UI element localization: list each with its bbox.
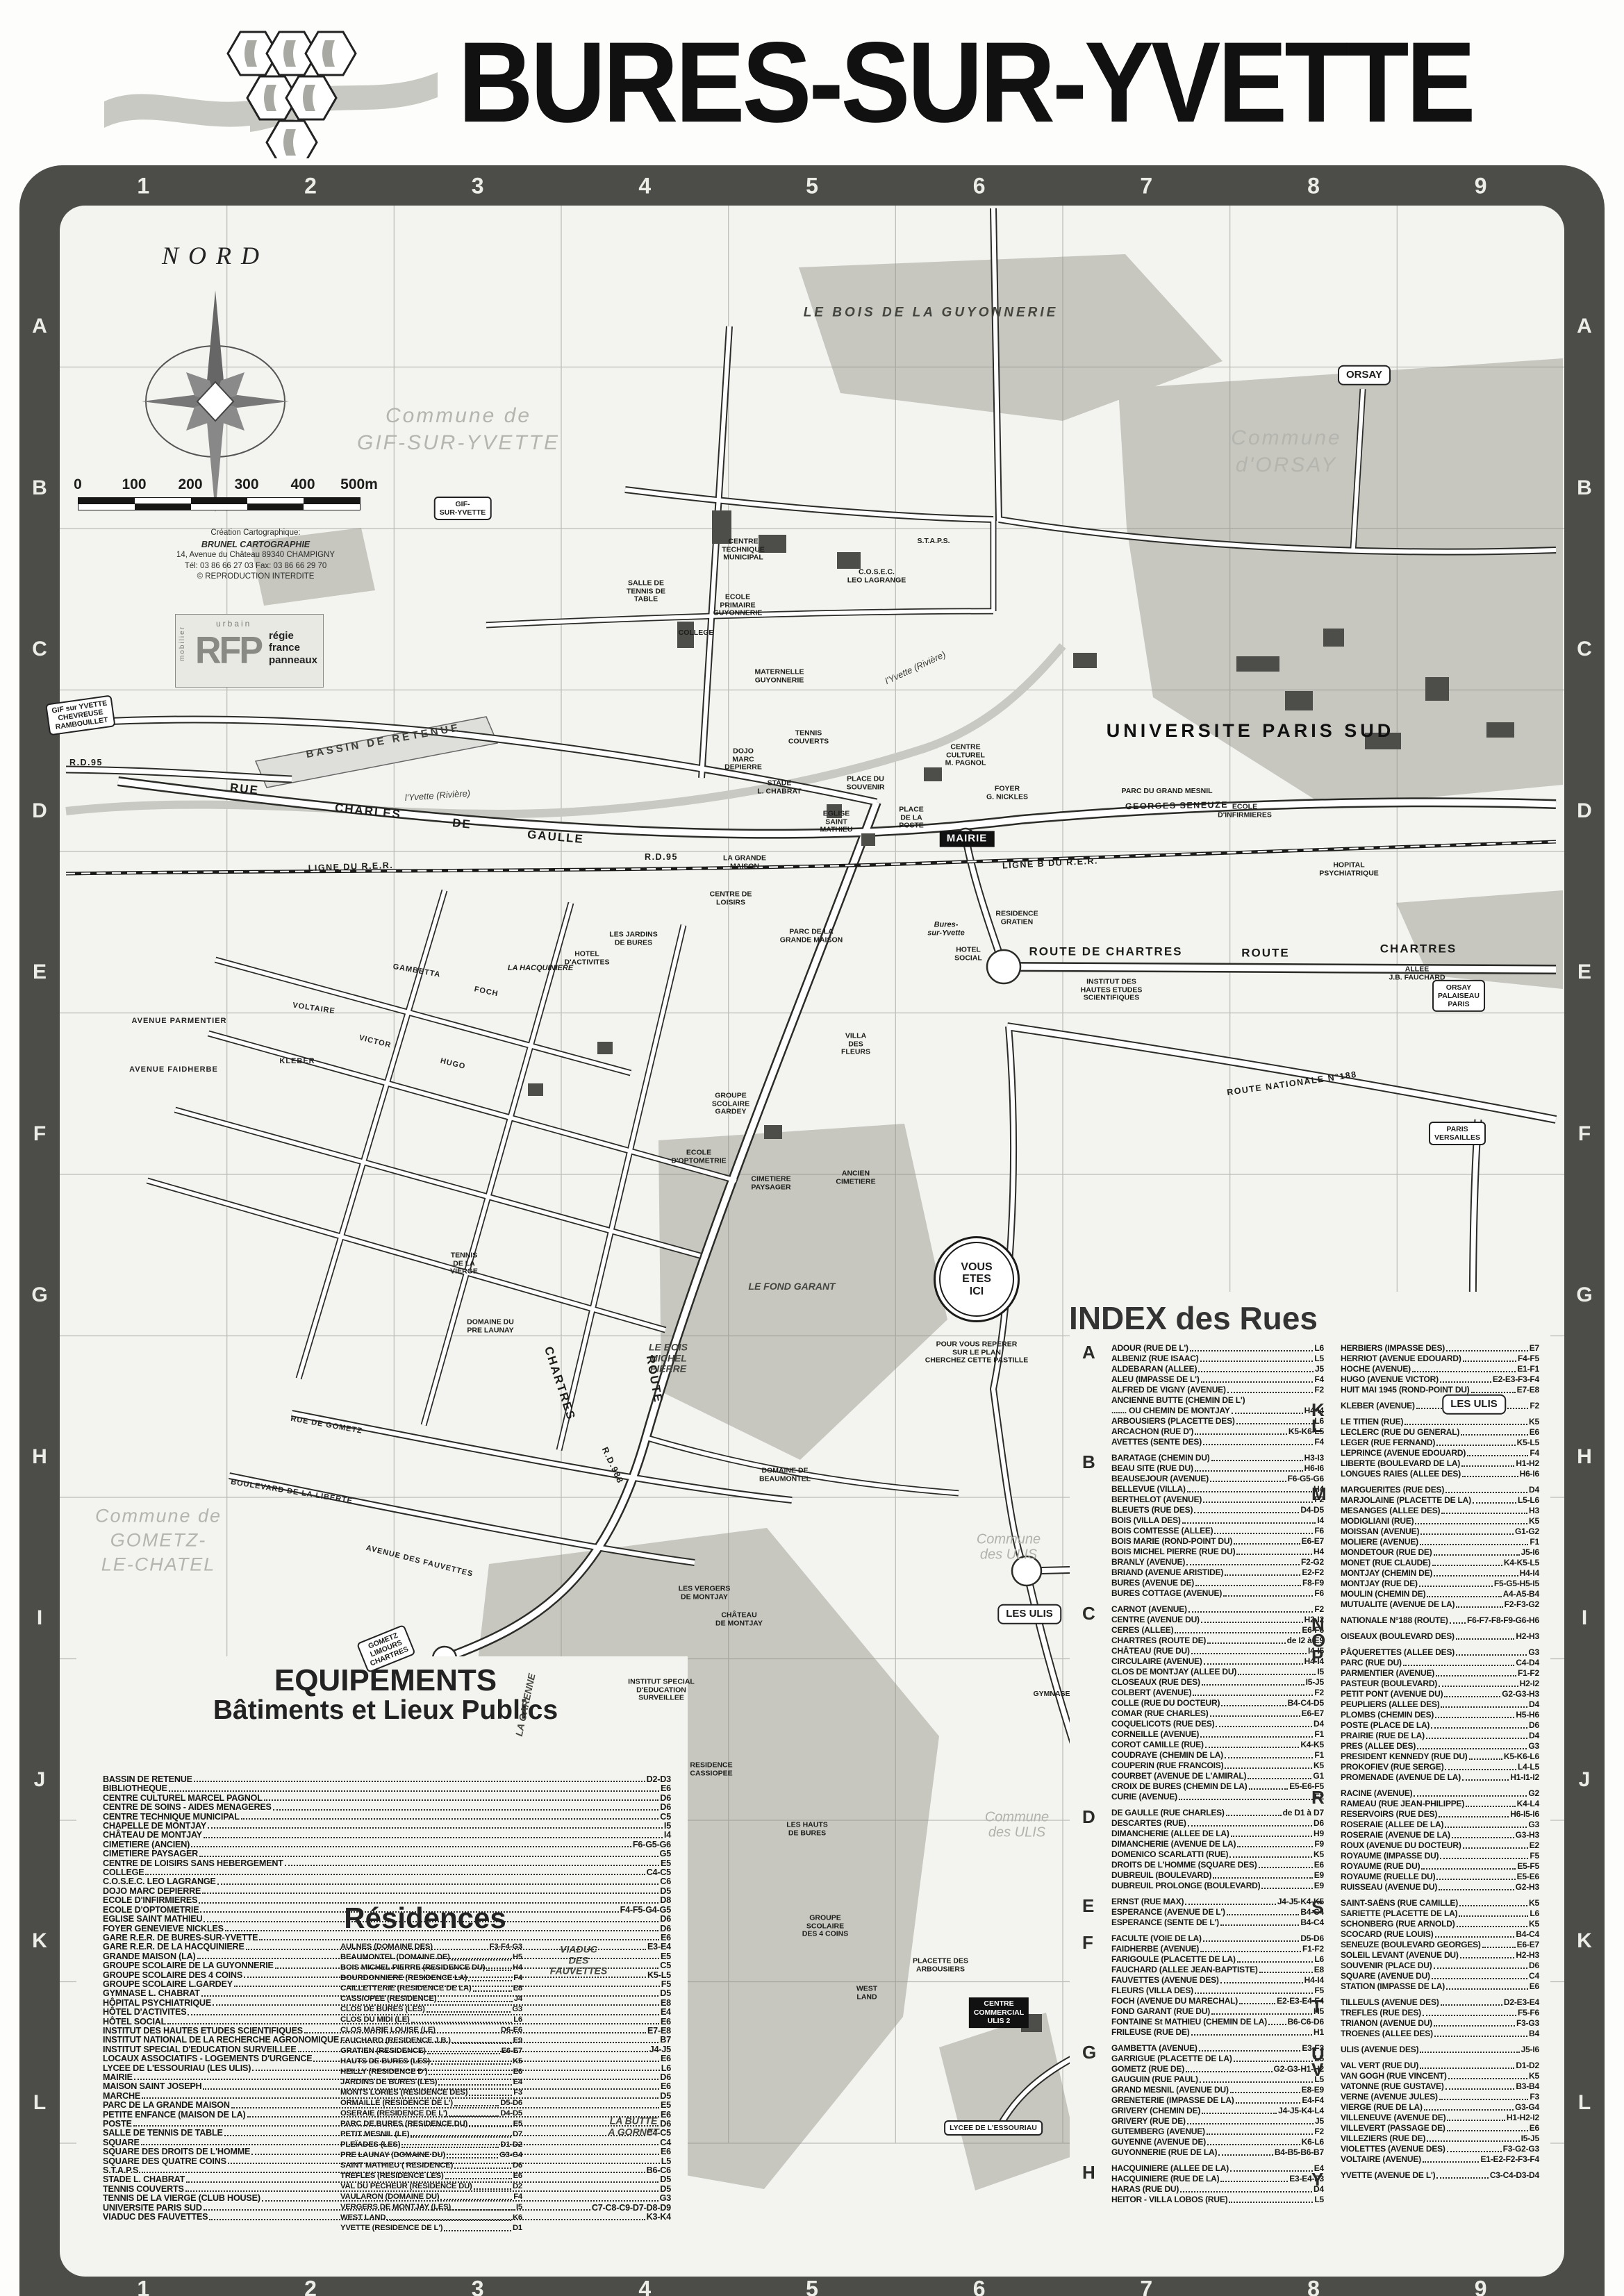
map-label: LES ULIS [997, 1604, 1061, 1624]
grid-row-label: K [1577, 1929, 1592, 1953]
list-entry: AVETTES (SENTE DES)F4 [1111, 1437, 1324, 1447]
grid-column-label: 7 [1140, 174, 1152, 199]
map-label: WEST LAND [856, 1985, 877, 2001]
list-entry: HERRIOT (AVENUE EDOUARD)F4-F5 [1341, 1354, 1539, 1364]
list-entry: GUYONNERIE (RUE DE LA)B4-B5-B6-B7 [1111, 2147, 1324, 2158]
map-label: RESIDENCE CASSIOPEE [690, 1761, 732, 1777]
list-entry: PARMENTIER (AVENUE)F1-F2 [1341, 1668, 1539, 1679]
list-entry: CURIE (AVENUE)F2 [1111, 1792, 1324, 1802]
map-label: GROUPE SCOLAIRE GARDEY [712, 1092, 749, 1117]
list-entry: HOCHE (AVENUE)E1-F1 [1341, 1364, 1539, 1374]
list-entry: ESPERANCE (AVENUE DE L')B4-C4 [1111, 1907, 1324, 1918]
list-entry: BEAUMONTEL (DOMAINE DE)H5 [340, 1952, 522, 1963]
list-entry: GRENETERIE (IMPASSE DE LA)E4-F4 [1111, 2095, 1324, 2106]
index-section-letter: A [1082, 1342, 1095, 1363]
grid-row-label: A [1577, 315, 1592, 338]
list-entry: HACQUINIERE (ALLEE DE LA)E4 [1111, 2163, 1324, 2174]
list-entry: PRAIRIE (RUE DE LA)D4 [1341, 1731, 1539, 1741]
list-entry: BIBLIOTHEQUEE6 [103, 1784, 671, 1793]
grid-column-label: 4 [638, 174, 651, 199]
list-entry: FOND GARANT (RUE DU)H5 [1111, 2006, 1324, 2017]
list-entry: VERGERS DE MONTJAY (LES)I5 [340, 2202, 522, 2213]
list-entry: GRAND MESNIL (AVENUE DU)E8-E9 [1111, 2085, 1324, 2095]
page-title: BURES-SUR-YVETTE [333, 0, 1598, 168]
scale-bar: 0100200300400500m [78, 476, 370, 513]
map-label: Commune des ULIS [985, 1810, 1049, 1841]
list-entry: BOIS (VILLA DES)I4 [1111, 1515, 1324, 1526]
grid-row-label: L [1578, 2091, 1591, 2115]
list-entry: COURBET (AVENUE DE L'AMIRAL)G1 [1111, 1771, 1324, 1781]
index-section: BBARATAGE (CHEMIN DU)H3-I3BEAU SITE (RUE… [1111, 1453, 1324, 1599]
map-label: ROUTE [1241, 946, 1290, 959]
index-section: YYVETTE (AVENUE DE L')C3-C4-D3-D4 [1341, 2170, 1539, 2181]
scale-segment [191, 498, 247, 504]
map-label: LES VERGERS DE MONTJAY [679, 1585, 731, 1601]
scale-segment [78, 498, 135, 504]
list-entry: BRIAND (AVENUE ARISTIDE)E2-F2 [1111, 1567, 1324, 1578]
index-section: PPÂQUERETTES (ALLEE DES)G3PARC (RUE DU)C… [1341, 1647, 1539, 1783]
list-entry: MARGUERITES (RUE DES)D4 [1341, 1485, 1539, 1495]
list-entry: FAUCHARD (RESIDENCE J.B.)E9 [340, 2036, 522, 2046]
list-entry: CIMETIERE (ANCIEN)F6-G5-G6 [103, 1840, 671, 1849]
list-entry: COUPERIN (RUE FRANCOIS)K5 [1111, 1761, 1324, 1771]
list-entry: CLOS MARIE LOUISE (LE)D6-E6 [340, 2025, 522, 2036]
map-label: LES ULIS [1442, 1395, 1506, 1415]
index-section-letter: E [1082, 1895, 1094, 1917]
list-entry: GARRIGUE (PLACETTE DE LA)L5 [1111, 2054, 1324, 2064]
list-entry: FACULTE (VOIE DE LA)D5-D6 [1111, 1933, 1324, 1944]
list-entry: HUGO (AVENUE VICTOR)E2-E3-F3-F4 [1341, 1374, 1539, 1385]
list-entry: SAINT-SAËNS (RUE CAMILLE)K5 [1341, 1898, 1539, 1908]
scale-tick-label: 500m [340, 476, 378, 493]
credits-line: BRUNEL CARTOGRAPHIE [151, 539, 360, 551]
scale-segment [247, 504, 304, 510]
list-entry: ULIS (AVENUE DES)J5-I6 [1341, 2045, 1539, 2055]
credits-line: 14, Avenue du Château 89340 CHAMPIGNY [151, 550, 360, 561]
list-entry: YVETTE (RESIDENCE DE L')D1 [340, 2223, 522, 2233]
list-entry: CAILLETTERIE (RESIDENCE DE LA)E8 [340, 1983, 522, 1994]
map-label: ECOLE PRIMAIRE GUYONNERIE [713, 594, 763, 618]
grid-column-label: 5 [806, 174, 818, 199]
map-label: PARC DE LA GRANDE MAISON [780, 928, 843, 944]
scale-segment [304, 498, 360, 504]
list-entry: ALEU (IMPASSE DE L')F4 [1111, 1374, 1324, 1385]
list-entry: VILLEVERT (PASSAGE DE)E6 [1341, 2123, 1539, 2133]
map-label: CENTRE COMMERCIAL ULIS 2 [969, 1997, 1029, 2028]
map-label: CHÂTEAU DE MONTJAY [715, 1611, 763, 1627]
grid-column-label: 6 [973, 2277, 986, 2296]
list-entry: LECLERC (RUE DU GENERAL)E6 [1341, 1427, 1539, 1438]
list-entry: FAUVETTES (AVENUE DES)H4-I4 [1111, 1975, 1324, 1986]
list-entry: CARNOT (AVENUE)F2 [1111, 1604, 1324, 1615]
list-entry: ROYAUME (RUE DU)E5-F5 [1341, 1861, 1539, 1872]
list-entry: MOLIERE (AVENUE)F1 [1341, 1537, 1539, 1547]
map-label: R.D.95 [645, 852, 678, 862]
map-label: CENTRE TECHNIQUE MUNICIPAL [722, 538, 765, 563]
list-entry: DROITS DE L'HOMME (SQUARE DES)E6 [1111, 1860, 1324, 1870]
grid-row-label: F [33, 1122, 46, 1146]
map-label: TENNIS COUVERTS [788, 729, 829, 745]
grid-row-label: L [33, 2091, 46, 2115]
list-entry: SQUARE (AVENUE DU)C4 [1341, 1971, 1539, 1981]
list-entry: FOCH (AVENUE DU MARECHAL)E2-E3-E4-F4 [1111, 1996, 1324, 2006]
grid-row-label: K [32, 1929, 47, 1953]
map-label: CHARTRES [1380, 942, 1457, 955]
map-label: GROUPE SCOLAIRE DES 4 COINS [802, 1915, 849, 1939]
list-entry: RAMEAU (RUE JEAN-PHILIPPE)K4-L4 [1341, 1799, 1539, 1809]
map-label: ANCIEN CIMETIERE [836, 1170, 875, 1186]
list-entry: CHÂTEAU (RUE DU)I4-I5 [1111, 1646, 1324, 1656]
header: BURES-SUR-YVETTE [0, 0, 1624, 165]
map-label: STADE L. CHABRAT [757, 779, 801, 795]
list-entry: PLEÏADES (LES)D1-D2 [340, 2140, 522, 2150]
list-entry: GUTEMBERG (AVENUE)F2 [1111, 2127, 1324, 2137]
index-section: HERBIERS (IMPASSE DES)E7HERRIOT (AVENUE … [1341, 1343, 1539, 1395]
list-entry: PRESIDENT KENNEDY (RUE DU)K5-K6-L6 [1341, 1752, 1539, 1762]
scale-segment [78, 504, 135, 510]
map-label: UNIVERSITE PARIS SUD [1107, 720, 1395, 741]
grid-column-label: 3 [472, 174, 484, 199]
list-entry: SCHONBERG (RUE ARNOLD)K5 [1341, 1919, 1539, 1929]
list-entry: FLEURS (VILLA DES)F5 [1111, 1986, 1324, 1996]
list-entry: LE TITIEN (RUE)K5 [1341, 1417, 1539, 1427]
list-entry: DESCARTES (RUE)D6 [1111, 1818, 1324, 1829]
map-label: TENNIS DE LA VIERGE [450, 1252, 478, 1276]
list-entry: CENTRE CULTUREL MARCEL PAGNOLD6 [103, 1794, 671, 1803]
list-entry: COLBERT (AVENUE)F2 [1111, 1688, 1324, 1698]
list-entry: BOIS COMTESSE (ALLEE)F6 [1111, 1526, 1324, 1536]
list-entry: BRANLY (AVENUE)F2-G2 [1111, 1557, 1324, 1567]
map-label: PLACE DU SOUVENIR [847, 775, 885, 791]
grid-column-label: 4 [638, 2277, 651, 2296]
list-entry: CLOS DE MONTJAY (ALLEE DU)I5 [1111, 1667, 1324, 1677]
index-section: AADOUR (RUE DE L')L6ALBENIZ (RUE ISAAC)L… [1111, 1343, 1324, 1447]
list-entry: BASSIN DE RETENUED2-D3 [103, 1775, 671, 1784]
list-entry: VAL DU PECHEUR (RESIDENCE DU)D2 [340, 2181, 522, 2192]
map-label: Commune des ULIS [977, 1532, 1041, 1563]
rfp-right-label: régie france panneaux [269, 630, 317, 666]
index-section-letter: F [1082, 1932, 1093, 1954]
map-label: SALLE DE TENNIS DE TABLE [627, 580, 665, 604]
grid-row-label: E [1577, 960, 1591, 984]
list-entry: ESPERANCE (SENTE DE L')B4-C4 [1111, 1918, 1324, 1928]
list-entry: CROIX DE BURES (CHEMIN DE LA)E5-E6-F5 [1111, 1781, 1324, 1792]
index-section: UULIS (AVENUE DES)J5-I6 [1341, 2045, 1539, 2055]
index-section: OOISEAUX (BOULEVARD DES)H2-H3 [1341, 1631, 1539, 1642]
list-entry: TRIANON (AVENUE DU)F3-G3 [1341, 2018, 1539, 2029]
list-entry: VAL VERT (RUE DU)D1-D2 [1341, 2061, 1539, 2071]
index-section: TTILLEULS (AVENUE DES)D2-E3-E4TREFLES (R… [1341, 1997, 1539, 2039]
list-entry: COUDRAYE (CHEMIN DE LA)F1 [1111, 1750, 1324, 1761]
map-label: FOYER G. NICKLES [986, 785, 1028, 801]
list-entry: PEUPLIERS (ALLEE DES)D4 [1341, 1699, 1539, 1710]
map-label: COLLEGE [679, 629, 714, 638]
list-entry: GRIVERY (CHEMIN DE)J4-J5-K4-L4 [1111, 2106, 1324, 2116]
index-section: NNATIONALE N°188 (ROUTE)F6-F7-F8-F9-G6-H… [1341, 1615, 1539, 1626]
list-entry: PARC DE BURES (RESIDENCE DU)E5 [340, 2119, 522, 2129]
list-entry: CENTRE DE LOISIRS SANS HEBERGEMENTE5 [103, 1859, 671, 1868]
index-section: RRACINE (AVENUE)G2RAMEAU (RUE JEAN-PHILI… [1341, 1788, 1539, 1892]
list-entry: VILLENEUVE (AVENUE DE)H1-H2-I2 [1341, 2113, 1539, 2123]
list-entry: COLLEGEC4-C5 [103, 1868, 671, 1877]
list-entry: DIMANCHERIE (AVENUE DE LA)F9 [1111, 1839, 1324, 1849]
list-entry: HAUTS DE BURES (LES)K5 [340, 2056, 522, 2067]
list-entry: ANCIENNE BUTTE (CHEMIN DE L') [1111, 1395, 1324, 1406]
list-entry: OISEAUX (BOULEVARD DES)H2-H3 [1341, 1631, 1539, 1642]
index-column-right: HERBIERS (IMPASSE DES)E7HERRIOT (AVENUE … [1341, 1343, 1539, 2186]
list-entry: CHARTRES (ROUTE DE)de I2 à E9 [1111, 1636, 1324, 1646]
list-entry: COROT CAMILLE (RUE)K4-K5 [1111, 1740, 1324, 1750]
map-label: LE FOND GARANT [748, 1281, 835, 1292]
map-label: MATERNELLE GUYONNERIE [755, 668, 804, 684]
grid-row-label: I [1582, 1606, 1587, 1630]
grid-row-label: H [32, 1445, 47, 1469]
grid-row-label: E [33, 960, 47, 984]
map-label: Commune de GOMETZ- LE-CHATEL [95, 1504, 222, 1577]
map-label: S.T.A.P.S. [917, 538, 950, 546]
grid-column-label: 7 [1140, 2277, 1152, 2296]
list-entry: NATIONALE N°188 (ROUTE)F6-F7-F8-F9-G6-H6 [1341, 1615, 1539, 1626]
list-entry: CENTRE DE SOINS - AIDES MENAGERESD6 [103, 1803, 671, 1812]
map-label: PLACE DE LA POSTE [899, 806, 924, 831]
list-entry: DUBREUIL PROLONGE (BOULEVARD)E9 [1111, 1881, 1324, 1891]
list-entry: MONTJAY (RUE DE)F5-G5-H5-I5 [1341, 1579, 1539, 1589]
list-entry: BOURDONNIERE (RESIDENCE LA)F4 [340, 1973, 522, 1983]
list-entry: ROUX (AVENUE DU DOCTEUR)E2 [1341, 1840, 1539, 1851]
list-entry: VIERGE (RUE DE LA)G3-G4 [1341, 2102, 1539, 2113]
list-entry: RESERVOIRS (RUE DES)H6-I5-I6 [1341, 1809, 1539, 1820]
list-entry: BURES COTTAGE (AVENUE)F6 [1111, 1588, 1324, 1599]
grid-row-label: G [31, 1283, 47, 1307]
map-label: PARC DU GRAND MESNIL [1121, 788, 1212, 796]
list-entry: AULNES (DOMAINE DES)F3-F4-G3 [340, 1942, 522, 1952]
grid-column-label: 1 [137, 174, 149, 199]
grid-column-label: 2 [304, 2277, 317, 2296]
index-section-letter: M [1311, 1483, 1327, 1505]
map-label: DE [451, 816, 472, 831]
grid-column-label: 2 [304, 174, 317, 199]
map-label: HOTEL SOCIAL [954, 946, 982, 962]
scale-tick-label: 300 [234, 476, 258, 493]
list-entry: FAUCHARD (ALLEE JEAN-BAPTISTE)E8 [1111, 1965, 1324, 1975]
grid-row-label: J [34, 1768, 46, 1792]
grid-column-label: 6 [973, 174, 986, 199]
list-entry: MARJOLAINE (PLACETTE DE LA)L5-L6 [1341, 1495, 1539, 1506]
list-entry: MUTUALITE (AVENUE DE LA)F2-F3-G2 [1341, 1599, 1539, 1610]
list-entry: VAN GOGH (RUE VINCENT)K5 [1341, 2071, 1539, 2081]
grid-row-label: H [1577, 1445, 1592, 1469]
grid-column-label: 9 [1475, 174, 1487, 199]
grid-column-label: 5 [806, 2277, 818, 2296]
index-section-letter: P [1311, 1646, 1323, 1667]
map-label: GIF- SUR-YVETTE [434, 497, 492, 520]
list-entry: VAULARON (DOMAINE DU)F4 [340, 2192, 522, 2202]
grid-column-label: 8 [1307, 174, 1320, 199]
list-entry: POSTE (PLACE DE LA)D6 [1341, 1720, 1539, 1731]
grid-column-label: 1 [137, 2277, 149, 2296]
list-entry: RACINE (AVENUE)G2 [1341, 1788, 1539, 1799]
list-entry: DUBREUIL (BOULEVARD)E9 [1111, 1870, 1324, 1881]
list-entry: KLEBER (AVENUE)F2 [1341, 1401, 1539, 1411]
list-entry: PARC (RUE DU)C4-D4 [1341, 1658, 1539, 1668]
list-entry: GUYENNE (AVENUE DE)K6-L6 [1111, 2137, 1324, 2147]
rfp-urbain-label: urbain [216, 619, 251, 629]
list-entry: SARIETTE (PLACETTE DE LA)L6 [1341, 1908, 1539, 1919]
list-entry: COMAR (RUE CHARLES)E6-E7 [1111, 1708, 1324, 1719]
list-entry: CLOS DU MIDI (LE)L6 [340, 2015, 522, 2025]
index-title: INDEX des Rues [1069, 1299, 1318, 1337]
list-entry: PASTEUR (BOULEVARD)H2-I2 [1341, 1679, 1539, 1689]
scale-tick-label: 0 [74, 476, 82, 493]
list-entry: BELLEVUE (VILLA)H4 [1111, 1484, 1324, 1495]
list-entry: VIOLETTES (AVENUE DES)F3-G2-G3 [1341, 2144, 1539, 2154]
grid-column-label: 8 [1307, 2277, 1320, 2296]
map-label: AVENUE FAIDHERBE [129, 1065, 218, 1074]
grid-column-label: 9 [1475, 2277, 1487, 2296]
list-entry: BLEUETS (RUE DES)D4-D5 [1111, 1505, 1324, 1515]
grid-row-label: F [1578, 1122, 1591, 1146]
list-entry: HEILLY (RESIDENCE D')E6 [340, 2067, 522, 2077]
list-entry: ARCACHON (RUE D')K5-K6-L5 [1111, 1426, 1324, 1437]
map-label: LA BUTTE A GORNET [608, 2115, 658, 2137]
list-entry: PETIT PONT (AVENUE DU)G2-G3-H3 [1341, 1689, 1539, 1699]
list-entry: GAMBETTA (AVENUE)E3-F3 [1111, 2043, 1324, 2054]
residences-list: AULNES (DOMAINE DES)F3-F4-G3BEAUMONTEL (… [340, 1942, 522, 2233]
list-entry: CORNEILLE (AVENUE)F1 [1111, 1729, 1324, 1740]
map-label: DOMAINE DU PRE LAUNAY [467, 1318, 514, 1334]
list-entry: ALBENIZ (RUE ISAAC)L5 [1111, 1354, 1324, 1364]
list-entry: ORMAILLE (RESIDENCE DE L')D5-D6 [340, 2098, 522, 2108]
list-entry: WEST LANDK6 [340, 2213, 522, 2223]
map-label: PLACETTE DES ARBOUSIERS [913, 1957, 968, 1973]
map-label: GYMNASE [1033, 1690, 1070, 1699]
list-entry: BOIS MICHEL PIERRE (RUE DU)H4 [1111, 1547, 1324, 1557]
list-entry: LONGUES RAIES (ALLEE DES)H6-I6 [1341, 1469, 1539, 1479]
list-entry: ALDEBARAN (ALLEE)J5 [1111, 1364, 1324, 1374]
list-entry: SAINT MATHIEU ( RESIDENCE)D6 [340, 2161, 522, 2171]
list-entry: CLOS DE BURES (LES)G3 [340, 2004, 522, 2015]
list-entry: MODIGLIANI (RUE)K5 [1341, 1516, 1539, 1526]
map-label: AVENUE PARMENTIER [132, 1017, 227, 1025]
map-label: RESIDENCE GRATIEN [995, 910, 1038, 926]
you-are-here-note: POUR VOUS REPERER SUR LE PLAN CHERCHEZ C… [925, 1341, 1029, 1365]
rfp-main-label: RFP [195, 629, 261, 673]
list-entry: BOIS MARIE (ROND-POINT DU)E6-E7 [1111, 1536, 1324, 1547]
grid-row-label: B [1577, 476, 1592, 500]
list-entry: HERBIERS (IMPASSE DES)E7 [1341, 1343, 1539, 1354]
index-section: CCARNOT (AVENUE)F2CENTRE (AVENUE DU)H2-I… [1111, 1604, 1324, 1802]
list-entry: SENEUZE (BOULEVARD GEORGES)E6-E7 [1341, 1940, 1539, 1950]
index-section: DDE GAULLE (RUE CHARLES)de D1 à D7DESCAR… [1111, 1808, 1324, 1891]
list-entry: BEAU SITE (RUE DU)H6-I6 [1111, 1463, 1324, 1474]
scale-segment [304, 504, 360, 510]
list-entry: ARBOUSIERS (PLACETTE DES)L6 [1111, 1416, 1324, 1426]
list-entry: CIRCULAIRE (AVENUE)H4-I4 [1111, 1656, 1324, 1667]
scale-tick-label: 100 [122, 476, 146, 493]
index-section-letter: H [1082, 2162, 1095, 2183]
you-are-here-badge: VOUS ETES ICI [934, 1236, 1020, 1322]
list-entry: SOLEIL LEVANT (AVENUE DU)H2-H3 [1341, 1950, 1539, 1961]
you-are-here-text: VOUS ETES ICI [939, 1242, 1014, 1317]
list-entry: YVETTE (AVENUE DE L')C3-C4-D3-D4 [1341, 2170, 1539, 2181]
list-entry: ROYAUME (IMPASSE DU)F5 [1341, 1851, 1539, 1861]
equipements-subtitle: Bâtiments et Lieux Publics [97, 1696, 674, 1726]
map-label: GEORGES SENEUZE [1125, 800, 1228, 812]
list-entry: HEITOR - VILLA LOBOS (RUE)L5 [1111, 2195, 1324, 2205]
index-section-letter: T [1311, 1996, 1323, 2018]
list-entry: ROYAUME (RUELLE DU)E5-E6 [1341, 1872, 1539, 1882]
credits-line: Tél: 03 86 66 27 03 Fax: 03 86 66 29 70 [151, 561, 360, 572]
list-entry: TILLEULS (AVENUE DES)D2-E3-E4 [1341, 1997, 1539, 2008]
rfp-mobilier-label: mobilier [179, 626, 186, 661]
list-entry: PRE LAUNAY (DOMAINE DU)G3-G4 [340, 2150, 522, 2161]
map-label: Commune d'ORSAY [1231, 424, 1341, 479]
list-entry: RUISSEAU (AVENUE DU)G2-H3 [1341, 1882, 1539, 1892]
map-page: BURES-SUR-YVETTE 112233445566778899AABBC… [0, 0, 1624, 2296]
list-entry: CERES (ALLEE)E6-F6 [1111, 1625, 1324, 1636]
index-section-letter: R [1311, 1787, 1325, 1808]
list-entry: GRATIEN (RESIDENCE)E6-E7 [340, 2046, 522, 2056]
index-section-letter: V [1311, 2059, 1323, 2081]
map-label: DOMAINE DE BEAUMONTEL [759, 1467, 811, 1483]
index-section: FFACULTE (VOIE DE LA)D5-D6FAIDHERBE (AVE… [1111, 1933, 1324, 2038]
map-label: PARIS VERSAILLES [1429, 1122, 1486, 1145]
index-column-left: AADOUR (RUE DE L')L6ALBENIZ (RUE ISAAC)L… [1111, 1343, 1324, 2211]
map-label: CENTRE DE LOISIRS [710, 890, 752, 906]
map-label: LE BOIS DE LA GUYONNERIE [804, 305, 1059, 319]
list-entry: CENTRE (AVENUE DU)H2-I2 [1111, 1615, 1324, 1625]
map-label: DOJO MARC DEPIERRE [724, 748, 762, 772]
map-label: MAIRIE [940, 831, 995, 847]
list-entry: GRIVERY (RUE DE)J5 [1111, 2116, 1324, 2127]
index-section: MMARGUERITES (RUE DES)D4MARJOLAINE (PLAC… [1341, 1485, 1539, 1610]
map-label: ECOLE D'INFIRMIERES [1218, 803, 1272, 819]
list-entry: SOUVENIR (PLACE DU)D6 [1341, 1961, 1539, 1971]
list-entry: ROSERAIE (AVENUE DE LA)G3-H3 [1341, 1830, 1539, 1840]
scale-tick-label: 400 [290, 476, 315, 493]
list-entry: COLLE (RUE DU DOCTEUR)B4-C4-D5 [1111, 1698, 1324, 1708]
list-entry: DOJO MARC DEPIERRED5 [103, 1887, 671, 1896]
list-entry: PLOMBS (CHEMIN DES)H5-H6 [1341, 1710, 1539, 1720]
map-label: LA GRANDE MAISON [723, 854, 766, 870]
list-entry: C.O.S.E.C. LEO LAGRANGEC6 [103, 1877, 671, 1886]
grid-row-label: J [1579, 1768, 1591, 1792]
list-entry: GOMETZ (RUE DE)G2-G3-H1-H2 [1111, 2064, 1324, 2074]
list-entry: MOULIN (CHEMIN DE)A4-A5-B4 [1341, 1589, 1539, 1599]
map-label: INSTITUT DES HAUTES ETUDES SCIENTIFIQUES [1081, 979, 1143, 1003]
map-label: ECOLE D'OPTOMETRIE [671, 1149, 726, 1165]
map-label: Bures- sur-Yvette [927, 921, 964, 938]
map-label: KLEBER [279, 1057, 315, 1065]
list-entry: MOISSAN (AVENUE)G1-G2 [1341, 1526, 1539, 1537]
list-entry: TREFLES (RUE DES)F5-F6 [1341, 2008, 1539, 2018]
index-section-letter: C [1082, 1603, 1095, 1624]
map-label: R.D.95 [69, 758, 103, 767]
list-entry: PROKOFIEV (RUE SERGE)L4-L5 [1341, 1762, 1539, 1772]
grid-row-label: C [1577, 638, 1592, 661]
map-label: HOPITAL PSYCHIATRIQUE [1319, 861, 1379, 877]
list-entry: LIBERTE (BOULEVARD DE LA)H1-H2 [1341, 1458, 1539, 1469]
list-entry: GAUGUIN (RUE PAUL)L5 [1111, 2074, 1324, 2085]
index-section-letter: D [1082, 1806, 1095, 1828]
list-entry: JARDINS DE BURES (LES)E4 [340, 2077, 522, 2088]
list-entry: CASSIOPEE (RESIDENCE)J4 [340, 1994, 522, 2004]
list-entry: PÂQUERETTES (ALLEE DES)G3 [1341, 1647, 1539, 1658]
list-entry: HACQUINIERE (RUE DE LA)E3-E4-F3 [1111, 2174, 1324, 2184]
index-section: EERNST (RUE MAX)J4-J5-K4-K5ESPERANCE (AV… [1111, 1897, 1324, 1928]
map-label: VIADUC DES FAUVETTES [550, 1944, 607, 1977]
list-entry: FONTAINE St MATHIEU (CHEMIN DE LA)B6-C6-… [1111, 2017, 1324, 2027]
